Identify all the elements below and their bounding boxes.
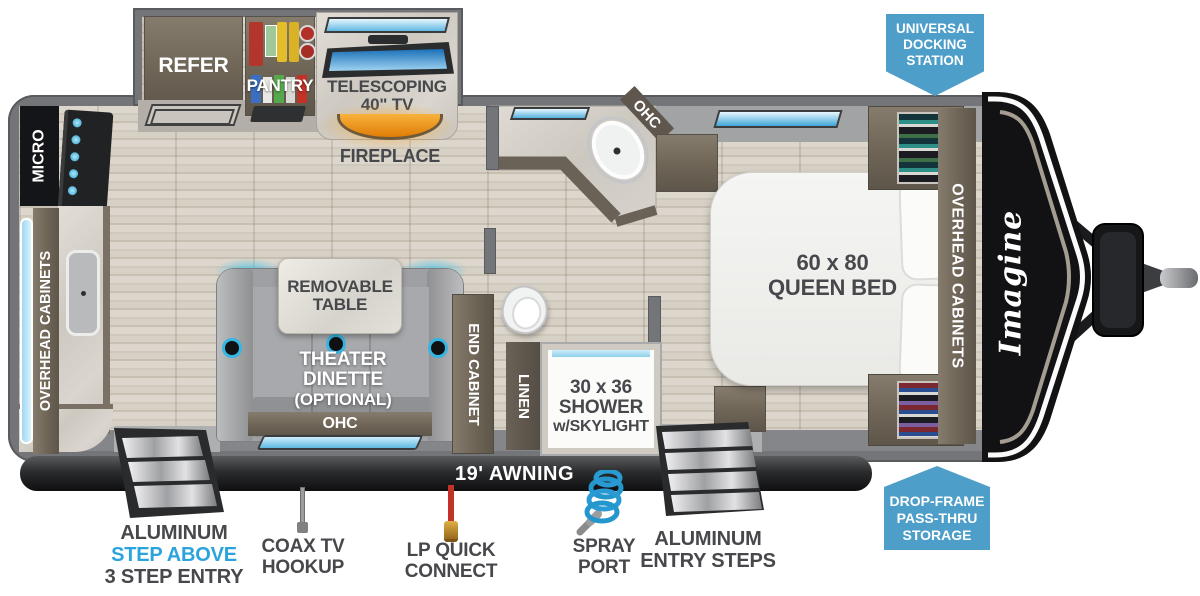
sink-drain-dot [614, 148, 621, 155]
pantry-item-can1 [299, 25, 316, 42]
step-entry-label: ALUMINUM STEP ABOVE 3 STEP ENTRY [100, 522, 248, 588]
lp-quick-connect-label: LP QUICK CONNECT [396, 540, 506, 582]
hitch-coupler [1160, 268, 1198, 288]
coax-tv-hookup-label: COAX TV HOOKUP [248, 536, 358, 578]
pantry-item-can2 [299, 43, 316, 60]
console-window [324, 17, 450, 33]
spray-port-label: SPRAY PORT [562, 536, 646, 578]
coax-cable [300, 487, 305, 527]
overhead-cabinets-left-label: OVERHEAD CABINETS [38, 251, 54, 411]
wall-stub-b [484, 228, 496, 274]
refer-label: REFER [158, 54, 228, 78]
shower-label: 30 x 36 SHOWER w/SKYLIGHT [548, 378, 654, 436]
pantry-item-yellow-box1 [277, 22, 287, 62]
tv-screen [329, 49, 447, 71]
dinette-ohc-label: OHC [323, 415, 358, 433]
brand-logo-text: Imagine [994, 210, 1029, 356]
pantry-item-red-box [249, 22, 263, 66]
dinette-ohc: OHC [248, 412, 432, 436]
refer-vent [144, 104, 241, 126]
pantry-item-green-box [265, 25, 277, 57]
cup-holder-right [428, 338, 448, 358]
queen-bed-label: 60 x 80 QUEEN BED [745, 250, 920, 300]
cup-holder-left [222, 338, 242, 358]
coax-connector [297, 522, 308, 533]
fireplace-label: FIREPLACE [330, 146, 450, 167]
removable-table-label1: REMOVABLE [287, 278, 393, 296]
linen-closet: LINEN [506, 342, 540, 450]
spray-port-hose [566, 470, 644, 540]
three-step-entry-steps [100, 424, 228, 522]
universal-docking-station-badge: UNIVERSAL DOCKING STATION [886, 14, 984, 96]
wall-stub-c [648, 296, 661, 348]
kitchen-window [20, 218, 33, 444]
pantry-item-yellow-box2 [289, 22, 299, 62]
end-cabinet: END CABINET [452, 294, 494, 454]
pantry-label: PANTRY [243, 76, 317, 96]
bedroom-corner-cabinet-top [656, 134, 718, 192]
micro-label: MICRO [31, 129, 49, 182]
bath-window [510, 107, 590, 120]
drop-frame-storage-badge: DROP-FRAME PASS-THRU STORAGE [884, 466, 990, 550]
theater-dinette-label: THEATER DINETTE (OPTIONAL) [258, 350, 428, 409]
toilet-bowl [508, 293, 545, 333]
propane-cover-inner [1100, 232, 1136, 328]
shower: 30 x 36 SHOWER w/SKYLIGHT [542, 344, 660, 454]
overhead-cabinets-left: OVERHEAD CABINETS [33, 208, 59, 454]
shower-glass [552, 350, 650, 357]
microwave: MICRO [20, 106, 59, 206]
removable-table-label2: TABLE [313, 296, 367, 314]
lp-fitting [444, 521, 458, 539]
aluminum-entry-steps-label: ALUMINUM ENTRY STEPS [638, 528, 778, 572]
wall-stub-a [486, 106, 499, 170]
end-cabinet-label: END CABINET [465, 323, 482, 426]
stove [58, 109, 114, 212]
lp-hose [448, 485, 454, 523]
brand-logo: Imagine [975, 225, 1047, 340]
linen-label: LINEN [515, 374, 532, 419]
pantry-vent [250, 106, 306, 122]
tv-mount [368, 35, 408, 44]
aluminum-entry-steps [648, 420, 770, 520]
pantry-cabinet [245, 16, 315, 116]
bedroom-window [713, 110, 842, 128]
removable-table: REMOVABLE TABLE [278, 258, 402, 334]
kitchen-sink [66, 250, 100, 336]
dinette-window [257, 435, 424, 450]
sink-drain [81, 291, 86, 296]
awning-label: 19' AWNING [455, 463, 574, 486]
floorplan-diagram: REFER PANTRY TELESCOPING 40" TV FIREPLAC… [0, 0, 1200, 596]
